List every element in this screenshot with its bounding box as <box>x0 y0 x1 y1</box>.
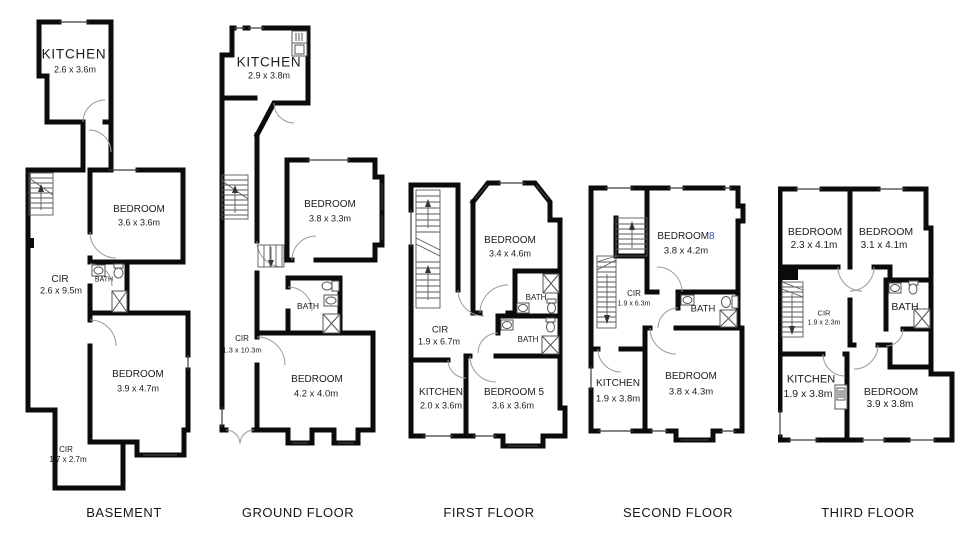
room-dims-bedroom-5: 3.6 x 3.6m <box>492 402 534 411</box>
room-label-bedroom-2: BEDROOM <box>859 227 913 238</box>
room-label-bath: BATH <box>691 304 716 314</box>
staircase-icon <box>416 190 440 308</box>
bath-fixtures <box>322 281 340 333</box>
room-dims-cir-2: 1.7 x 2.7m <box>49 456 86 464</box>
room-label-cir: CIR <box>432 325 448 335</box>
room-dims-cir: 1.3 x 10.3m <box>222 346 261 354</box>
room-label-kitchen: KITCHEN <box>42 47 107 61</box>
stair-arrow-icon <box>789 326 795 335</box>
room-dims-bedroom-2: 3.9 x 4.7m <box>117 385 159 394</box>
room-label-bath: BATH <box>526 294 547 302</box>
room-label-bedroom-3: BEDROOM <box>864 387 918 398</box>
room-dims-bedroom: 3.8 x 4.3m <box>669 387 713 397</box>
stair-arrow-icon <box>604 315 610 324</box>
room-dims-cir: 1.9 x 2.3m <box>808 320 841 327</box>
floor-caption-first: FIRST FLOOR <box>443 505 534 520</box>
room-label-bath-2: BATH <box>518 336 539 344</box>
room-label-bedroom: BEDROOM <box>304 200 356 210</box>
floor-caption-ground: GROUND FLOOR <box>242 505 354 520</box>
staircase-icon <box>597 218 647 328</box>
room-label-kitchen: KITCHEN <box>237 55 302 69</box>
room-dims-bedroom: 3.8 x 3.3m <box>309 215 351 224</box>
basement-walls <box>28 22 188 488</box>
room-label-bedroom-2: BEDROOM <box>291 375 343 385</box>
room-label-cir: CIR <box>818 309 831 317</box>
second-door-arcs <box>598 267 682 372</box>
room-dims-cir: 2.6 x 9.5m <box>40 287 82 296</box>
floorplan-basement: KITCHEN 2.6 x 3.6m BEDROOM 3.6 x 3.6m CI… <box>25 10 205 492</box>
room-dims-bedroom: 2.3 x 4.1m <box>791 241 838 251</box>
room-label-cir: CIR <box>235 335 249 343</box>
basement-drawing <box>25 10 205 492</box>
room-dims-kitchen: 2.9 x 3.8m <box>248 72 290 81</box>
room-dims-kitchen: 1.9 x 3.8m <box>596 394 640 404</box>
floorplan-third: BEDROOM 2.3 x 4.1m BEDROOM 3.1 x 4.1m CI… <box>778 182 963 477</box>
room-name: BEDROOM <box>657 231 709 242</box>
room-label-bedroom-8: BEDROOM8 <box>657 232 714 242</box>
room-dims-cir: 1.9 x 6.3m <box>618 301 651 308</box>
room-label-bedroom: BEDROOM <box>665 372 717 382</box>
floorplan-first: BEDROOM 3.4 x 4.6m BATH BATH CIR 1.9 x 6… <box>408 168 573 463</box>
stair-arrow-icon <box>425 265 431 273</box>
room-label-bedroom: BEDROOM <box>484 236 536 246</box>
wall-nub <box>28 238 34 248</box>
room-label-bath: BATH <box>891 302 918 313</box>
room-dims-kitchen: 2.6 x 3.6m <box>54 66 96 75</box>
room-dims-bedroom-8: 3.8 x 4.2m <box>664 246 708 256</box>
room-dims-bedroom: 3.4 x 4.6m <box>489 250 531 259</box>
room-dims-kitchen: 2.0 x 3.6m <box>420 402 462 411</box>
staircase-icon <box>29 173 53 215</box>
room-dims-cir: 1.9 x 6.7m <box>418 338 460 347</box>
room-label-cir: CIR <box>627 290 641 298</box>
room-label-cir: CIR <box>51 275 68 285</box>
floor-caption-second: SECOND FLOOR <box>623 505 733 520</box>
room-dims-bedroom-2: 3.1 x 4.1m <box>861 241 908 251</box>
stair-arrow-icon <box>629 221 635 230</box>
room-label-bedroom: BEDROOM <box>113 205 165 215</box>
room-label-bath: BATH <box>297 302 319 311</box>
chimney-block <box>780 266 798 280</box>
floorplan-ground: KITCHEN 2.9 x 3.8m BEDROOM 3.8 x 3.3m BA… <box>212 15 402 485</box>
room-label-cir-2: CIR <box>59 446 73 454</box>
floorplan-sheet: KITCHEN 2.6 x 3.6m BEDROOM 3.6 x 3.6m CI… <box>0 0 965 542</box>
bath-fixtures <box>92 264 127 312</box>
floorplan-second: BEDROOM8 3.8 x 4.2m CIR 1.9 x 6.3m BATH … <box>588 178 763 468</box>
floor-caption-basement: BASEMENT <box>86 505 162 520</box>
room-label-bath: BATH <box>95 277 113 284</box>
room-label-bedroom-5: BEDROOM 5 <box>484 388 544 398</box>
stair-arrow-icon <box>425 199 431 207</box>
first-drawing <box>408 168 573 463</box>
room-dims-bedroom-3: 3.9 x 3.8m <box>867 400 914 410</box>
room-dims-kitchen: 1.9 x 3.8m <box>783 389 832 400</box>
room-label-kitchen: KITCHEN <box>419 388 463 398</box>
floor-caption-third: THIRD FLOOR <box>821 505 915 520</box>
room-number: 8 <box>709 231 715 242</box>
room-label-bedroom: BEDROOM <box>788 227 842 238</box>
ground-drawing <box>212 15 402 485</box>
staircase-icon <box>222 175 248 219</box>
second-drawing <box>588 178 763 468</box>
room-dims-bedroom: 3.6 x 3.6m <box>118 219 160 228</box>
room-label-kitchen: KITCHEN <box>787 375 835 386</box>
kitchen-sink-icon <box>292 31 307 56</box>
kitchen-sink-icon <box>835 385 847 409</box>
room-dims-bedroom-2: 4.2 x 4.0m <box>294 389 338 399</box>
room-label-bedroom-2: BEDROOM <box>112 370 164 380</box>
room-label-kitchen: KITCHEN <box>596 379 640 389</box>
